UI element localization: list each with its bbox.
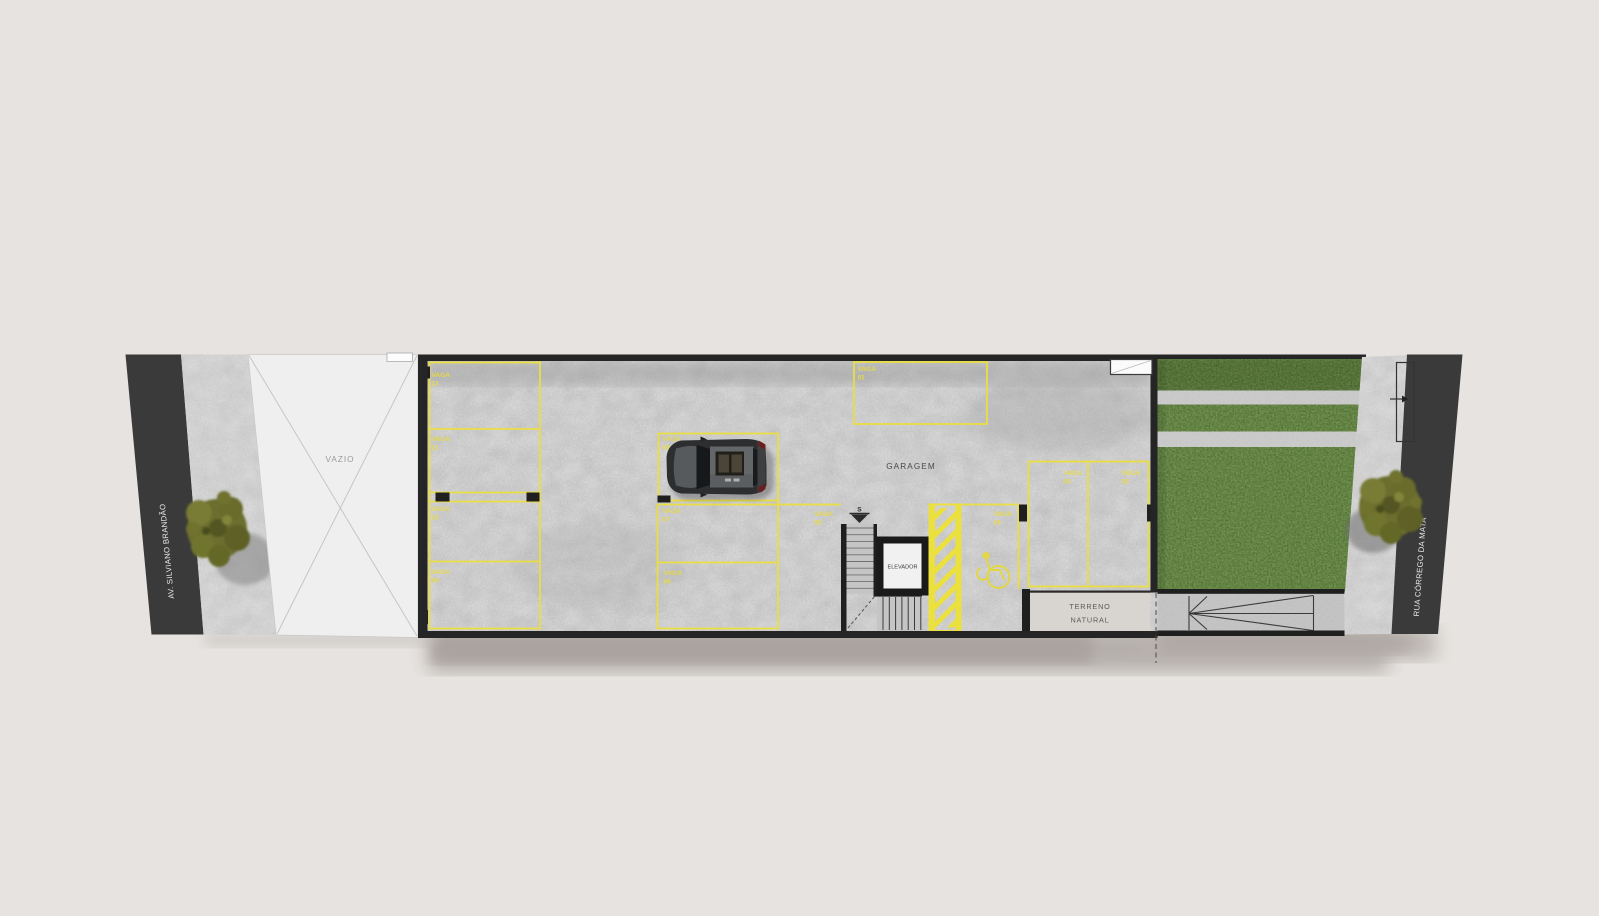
svg-text:S: S <box>857 507 862 514</box>
svg-text:05: 05 <box>815 520 823 527</box>
svg-text:04: 04 <box>994 520 1002 527</box>
svg-text:VAGA: VAGA <box>858 366 877 373</box>
svg-text:01: 01 <box>858 375 866 382</box>
svg-text:11: 11 <box>432 445 439 452</box>
svg-text:ELEVADOR: ELEVADOR <box>887 565 917 571</box>
svg-text:03: 03 <box>1064 479 1072 486</box>
svg-text:NATURAL: NATURAL <box>1070 616 1109 625</box>
svg-text:VAZIO: VAZIO <box>326 455 355 464</box>
svg-text:VAGA: VAGA <box>994 511 1013 518</box>
svg-text:VAGA: VAGA <box>663 508 682 515</box>
svg-text:02: 02 <box>1122 479 1130 486</box>
svg-text:VAGA: VAGA <box>1064 470 1083 477</box>
svg-text:09: 09 <box>432 578 440 585</box>
svg-text:VAGA: VAGA <box>815 511 834 518</box>
svg-text:10: 10 <box>432 515 440 522</box>
svg-text:VAGA: VAGA <box>432 506 451 513</box>
svg-text:VAGA: VAGA <box>432 569 451 576</box>
svg-text:VAGA: VAGA <box>432 372 451 379</box>
svg-text:07: 07 <box>663 517 671 524</box>
svg-text:VAGA: VAGA <box>432 436 451 443</box>
svg-text:VAGA: VAGA <box>1122 470 1141 477</box>
svg-text:06: 06 <box>664 579 672 586</box>
svg-text:TERRENO: TERRENO <box>1069 602 1110 611</box>
svg-text:VAGA: VAGA <box>664 570 683 577</box>
svg-text:12: 12 <box>432 381 440 388</box>
svg-text:GARAGEM: GARAGEM <box>886 462 936 471</box>
